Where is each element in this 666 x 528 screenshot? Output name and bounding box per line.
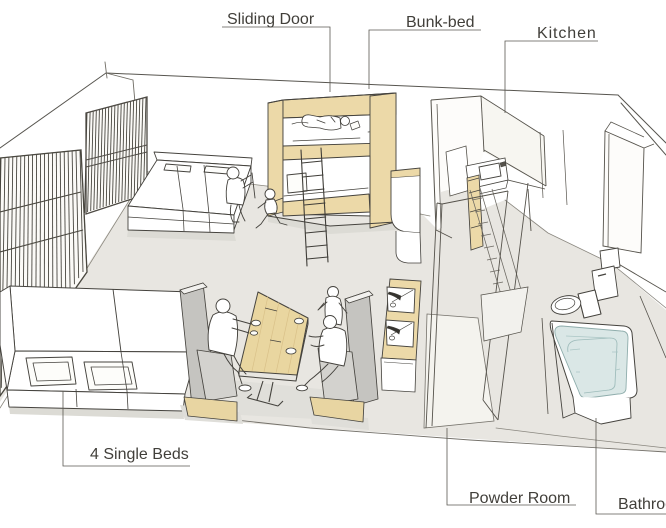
svg-text:Bathroom: Bathroom <box>618 496 666 513</box>
svg-text:Kitchen: Kitchen <box>537 25 597 42</box>
svg-text:Sliding Door: Sliding Door <box>227 11 315 28</box>
svg-text:4 Single Beds: 4 Single Beds <box>90 446 189 463</box>
svg-text:Powder Room: Powder Room <box>469 490 570 507</box>
svg-text:Bunk-bed: Bunk-bed <box>406 14 475 31</box>
